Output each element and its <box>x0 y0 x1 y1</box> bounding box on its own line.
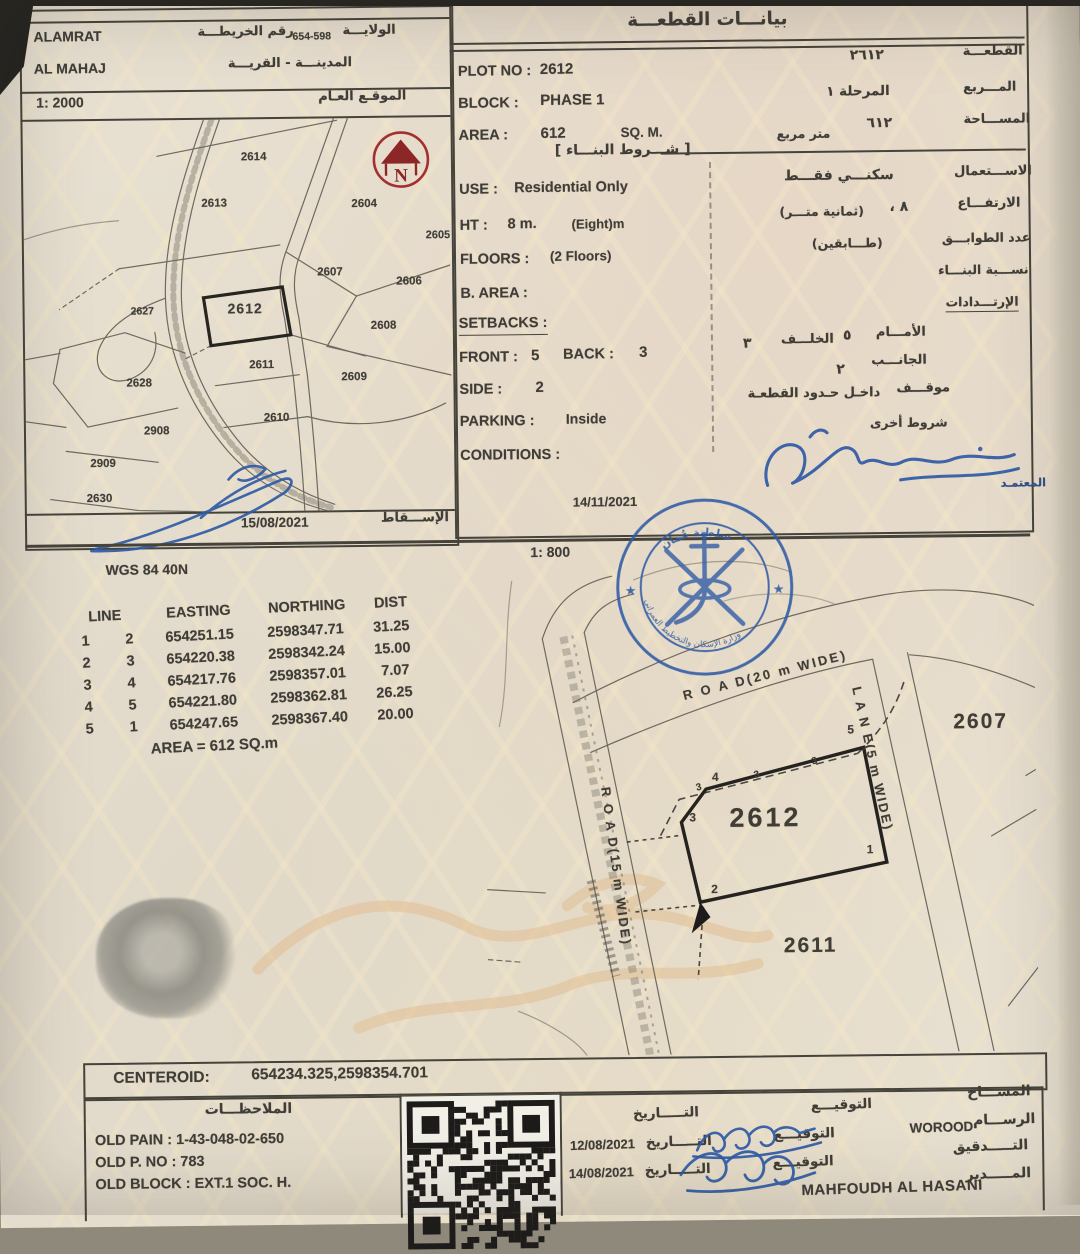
vertex-5: 5 <box>847 723 854 736</box>
check-date: 14/08/2021 <box>569 1165 634 1181</box>
line-from: 5 <box>85 722 94 738</box>
plot-label: 2605 <box>426 229 451 241</box>
stamp-star-left: ★ <box>625 583 637 598</box>
dist: 7.07 <box>381 663 410 680</box>
building-area-label-ar: نســـبة البنـــاء <box>938 262 1029 277</box>
dist: 26.25 <box>376 685 413 703</box>
line-from: 4 <box>84 700 93 716</box>
dist: 31.25 <box>373 619 410 637</box>
area-label-ar: المســـاحة <box>963 112 1030 127</box>
area-label: AREA : <box>459 128 509 144</box>
overview-map: N 2614 2613 2604 2605 2607 2606 2627 261… <box>22 117 452 514</box>
block-label-ar: المـــربع <box>963 81 1016 96</box>
use-value-ar: سكنـــي فقـــط <box>784 168 894 185</box>
surveyor-role: المســـاح <box>967 1084 1031 1101</box>
height-note-ar: (ثمانية متـــر) <box>779 204 864 219</box>
conditions-label: CONDITIONS : <box>460 448 560 465</box>
area-unit-ar: متر مربع <box>777 127 831 141</box>
side-value: 2 <box>535 380 544 397</box>
scan-edge-top <box>0 0 1080 6</box>
parking-value: Inside <box>566 411 607 427</box>
northing: 2598357.01 <box>269 666 346 686</box>
building-conditions-title: [ شـــروط البنـــاء ] <box>555 142 691 159</box>
signature-label: التوقيـــع <box>811 1097 873 1114</box>
official-stamp: سلطنة عُمان وزارة الإسكان والتخطيط العمر… <box>609 491 801 683</box>
svg-text:وزارة الإسكان والتخطيط العمران: وزارة الإسكان والتخطيط العمراني <box>642 597 743 651</box>
building-area-label: B. AREA : <box>460 286 528 303</box>
plot-no-label-ar: القطعـــة <box>963 44 1023 59</box>
northing: 2598342.24 <box>268 644 345 664</box>
col-header-northing: NORTHING <box>268 598 346 618</box>
datum-label: WGS 84 40N <box>105 562 188 578</box>
back-label-ar: الخلـــف <box>781 333 834 348</box>
front-value: 5 <box>531 348 540 365</box>
region-name-1: ALAMRAT <box>33 29 101 45</box>
area-value: 612 <box>541 126 566 143</box>
map-number-value: 654-598 <box>292 31 331 43</box>
front-value-ar: ٥ <box>843 328 852 343</box>
setbacks-label-ar: الإرتـــدادات <box>945 295 1018 313</box>
line-from: 1 <box>81 634 90 650</box>
front-label-ar: الأمـــام <box>876 326 926 341</box>
draftsman-name: WOROOD <box>909 1120 973 1137</box>
block-label: BLOCK : <box>458 96 519 113</box>
stamp-star-right: ★ <box>773 581 785 596</box>
plot-label: 2627 <box>131 306 154 318</box>
north-arrow-icon: N <box>374 132 429 187</box>
side-label: SIDE : <box>459 382 502 398</box>
height-note: (Eight)m <box>572 217 625 232</box>
plot-label: 2606 <box>396 275 422 288</box>
plot-label: 2908 <box>144 425 170 438</box>
vertex-1: 1 <box>867 843 874 856</box>
old-pain-note: OLD PAIN : 1-43-048-02-650 <box>95 1132 284 1150</box>
plot-no-value-ar: ٢٦١٢ <box>850 48 884 64</box>
projection-label: الإســـقاط <box>381 511 449 526</box>
height-label: HT : <box>460 219 488 235</box>
easting: 654247.65 <box>169 715 238 734</box>
line-from: 3 <box>83 678 92 694</box>
plot-label: 2607 <box>317 266 343 279</box>
draftsman-role: الرســـام <box>973 1112 1036 1129</box>
old-block-note: OLD BLOCK : EXT.1 SOC. H. <box>95 1176 291 1194</box>
vertex-3: 3 <box>689 811 696 824</box>
plot-label: 2614 <box>241 151 267 164</box>
vertex-4: 4 <box>712 771 719 784</box>
easting: 654217.76 <box>167 671 236 690</box>
plot-no-value: 2612 <box>540 62 574 79</box>
qr-code <box>402 1095 561 1214</box>
northing: 2598367.40 <box>271 710 348 730</box>
plot-no-label: PLOT NO : <box>458 64 531 81</box>
height-label-ar: الارتفـــاع <box>957 197 1020 212</box>
height-value-ar: ٨ ، <box>889 200 908 216</box>
dist: 15.00 <box>374 641 411 659</box>
manager-name: MAHFOUDH AL HASANI <box>801 1178 983 1200</box>
parking-label-ar: موقـــف <box>896 381 950 396</box>
front-label: FRONT : <box>459 350 518 367</box>
main-plot-number: 2612 <box>729 803 801 834</box>
back-value: 3 <box>639 345 648 362</box>
small-map-scale: 1: 2000 <box>36 95 84 111</box>
plot-label: 2628 <box>126 377 152 390</box>
northing: 2598347.71 <box>267 622 344 642</box>
line-to: 5 <box>128 698 137 714</box>
height-value: 8 m. <box>508 217 537 233</box>
floors-label-ar: عدد الطوابـــق <box>942 230 1031 245</box>
stamp-bottom-text: وزارة الإسكان والتخطيط العمراني <box>642 597 743 651</box>
wilaya-label: الولايـــة <box>342 24 395 39</box>
side-value-ar: ٢ <box>836 363 845 378</box>
use-value: Residential Only <box>514 180 628 197</box>
coordinates-table: LINE EASTING NORTHING DIST 1 2 654251.15… <box>65 579 503 774</box>
check-signature <box>668 1139 822 1200</box>
easting: 654221.80 <box>168 693 237 712</box>
floors-label: FLOORS : <box>460 252 529 269</box>
svg-text:N: N <box>394 165 408 186</box>
line-from: 2 <box>82 656 91 672</box>
old-plot-no-note: OLD P. NO : 783 <box>95 1155 205 1172</box>
area-note: AREA = 612 SQ.m <box>150 735 278 758</box>
scanned-document: ALAMRAT AL MAHAJ الولايـــة 654-598 رقم … <box>0 0 1080 1228</box>
approved-label-ar: المعتمـد <box>1001 476 1047 489</box>
setbacks-heading: SETBACKS : <box>459 316 548 336</box>
col-header-dist: DIST <box>374 595 408 613</box>
centroid-label: CENTEROID: <box>113 1069 210 1087</box>
draftsman-date: 12/08/2021 <box>570 1137 635 1153</box>
col-header-line: LINE <box>88 609 122 627</box>
dist: 20.00 <box>377 707 414 725</box>
plot-label: 2604 <box>351 198 377 211</box>
gray-stamp-smudge <box>95 897 242 1019</box>
line-to: 2 <box>125 632 134 648</box>
plot-label: 2609 <box>341 371 367 384</box>
side-label-ar: الجانـــب <box>871 354 927 369</box>
parking-value-ar: داخـل حـدود القطعـة <box>748 386 881 402</box>
plot-label: 2610 <box>264 412 290 425</box>
general-location-label: الموقـع العـام <box>318 89 406 104</box>
use-label: USE : <box>459 182 498 198</box>
line-to: 1 <box>129 720 138 736</box>
back-value-ar: ٣ <box>743 337 752 352</box>
plot-label-highlight: 2612 <box>227 301 262 317</box>
line-to: 3 <box>126 654 135 670</box>
floors-value-ar: (طـــابقين) <box>812 236 883 251</box>
col-header-easting: EASTING <box>166 604 231 623</box>
centroid-value: 654234.325,2598354.701 <box>251 1064 428 1083</box>
parking-label: PARKING : <box>460 414 535 431</box>
back-label: BACK : <box>563 347 614 364</box>
block-value: PHASE 1 <box>540 92 604 109</box>
plot-label: 2608 <box>371 320 397 333</box>
map-signature-scrawl <box>80 457 311 565</box>
check-role: التـــــدقيق <box>953 1138 1029 1156</box>
signature-table: المســـاح التوقيـــع التـــــاريخ الرســ… <box>560 1080 1044 1217</box>
vertex-2: 2 <box>711 883 718 896</box>
easting: 654251.15 <box>165 627 234 646</box>
floors-value: (2 Floors) <box>550 249 612 265</box>
city-village-label: المدينـــة - القريـــة <box>228 56 352 72</box>
plot-label: 2611 <box>249 359 274 372</box>
vertex-2-wedge <box>691 902 710 933</box>
neighbor-plot-below: 2611 <box>784 934 838 958</box>
notes-title: الملاحظـــات <box>205 1102 293 1118</box>
use-label-ar: الاســـتعمال <box>954 164 1032 179</box>
region-name-2: AL MAHAJ <box>34 61 106 77</box>
line-to: 4 <box>127 676 136 692</box>
neighbor-plot-right: 2607 <box>953 710 1008 734</box>
area-unit: SQ. M. <box>621 126 663 141</box>
plot-data-title: بيانـــات القطعـــة <box>627 9 787 31</box>
easting: 654220.38 <box>166 649 235 668</box>
map-number-label: رقم الخريطـــة <box>197 25 293 40</box>
northing: 2598362.81 <box>270 688 347 708</box>
area-value-ar: ٦١٢ <box>866 116 892 132</box>
plot-label: 2613 <box>201 198 227 211</box>
block-value-ar: المرحلة ١ <box>826 84 890 100</box>
